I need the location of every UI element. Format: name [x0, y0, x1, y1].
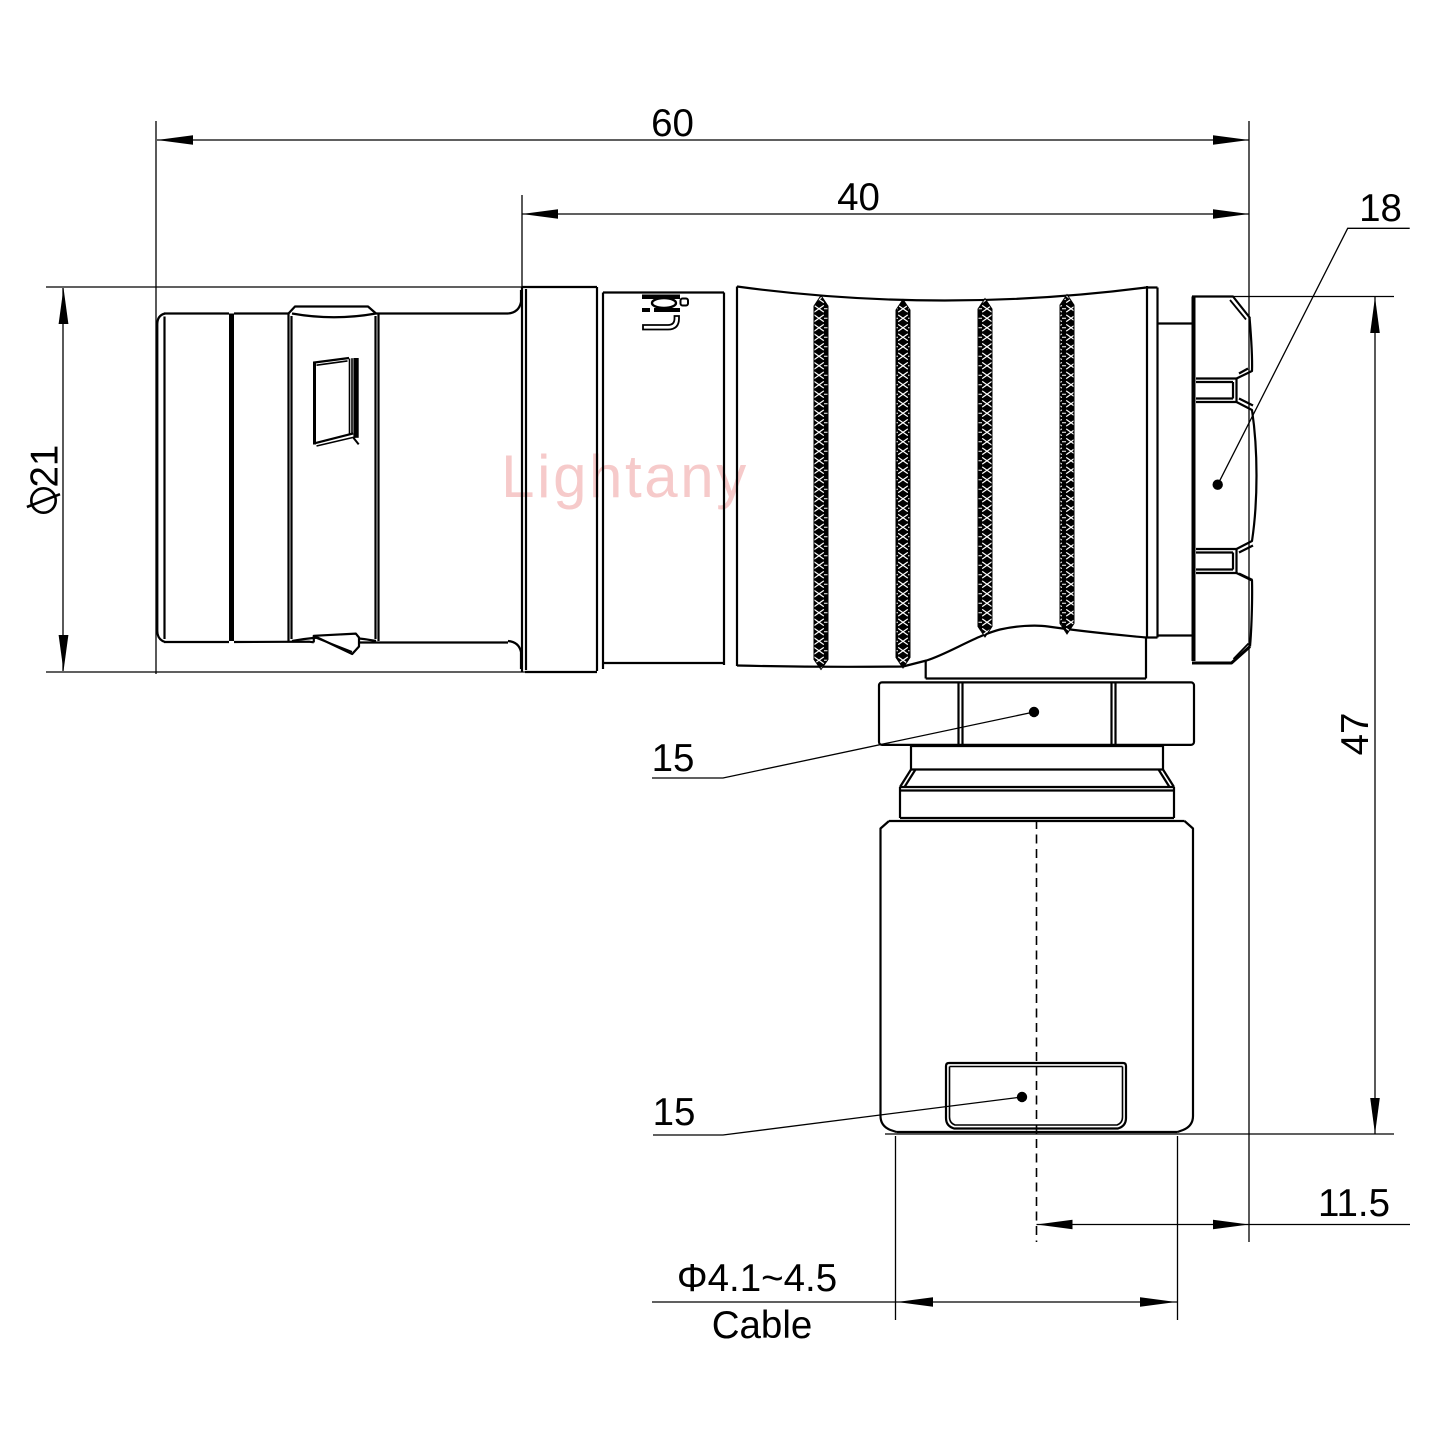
- svg-text:60: 60: [651, 102, 694, 145]
- svg-text:21: 21: [24, 445, 67, 488]
- svg-text:Lightany: Lightany: [501, 443, 749, 510]
- svg-text:47: 47: [1334, 713, 1377, 756]
- svg-text:15: 15: [653, 1091, 696, 1134]
- svg-text:15: 15: [652, 737, 695, 780]
- svg-text:11.5: 11.5: [1318, 1182, 1390, 1225]
- svg-text:Cable: Cable: [712, 1304, 813, 1347]
- svg-text:18: 18: [1359, 187, 1402, 230]
- svg-text:Φ4.1~4.5: Φ4.1~4.5: [677, 1257, 837, 1300]
- svg-text:40: 40: [837, 176, 880, 219]
